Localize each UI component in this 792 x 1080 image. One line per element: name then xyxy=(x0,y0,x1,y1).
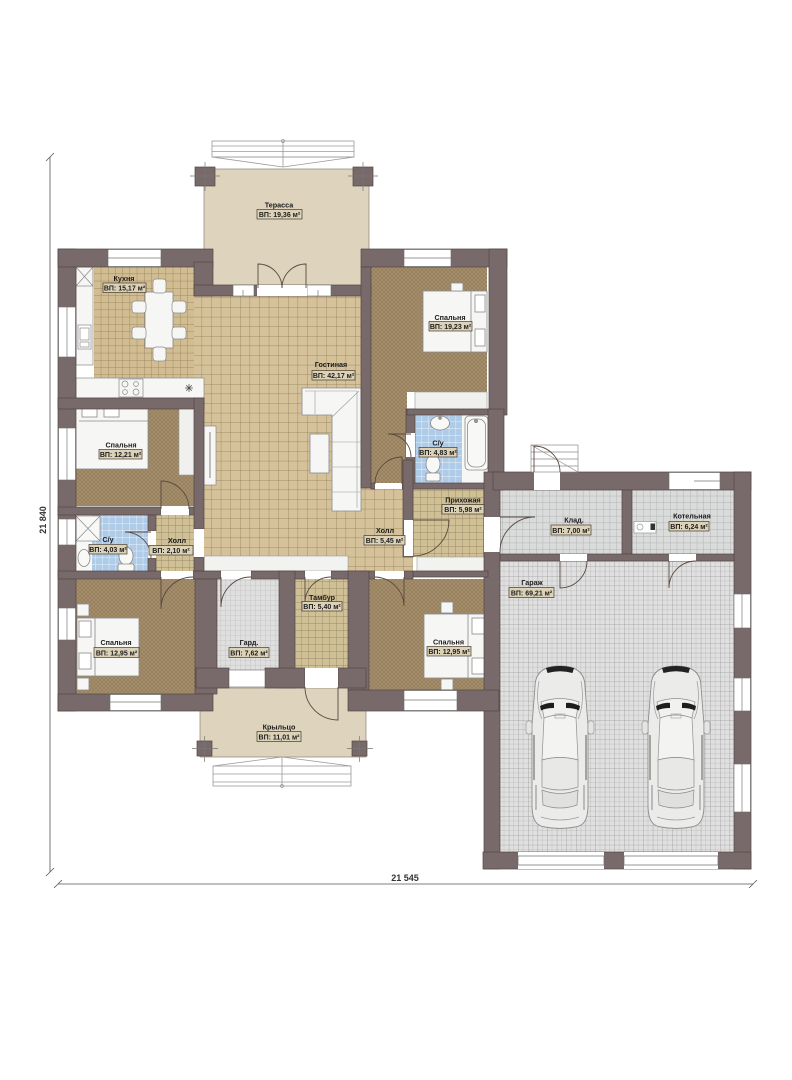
svg-text:ВП: 12,21 м²: ВП: 12,21 м² xyxy=(100,452,142,459)
svg-text:Кухня: Кухня xyxy=(113,274,134,283)
svg-text:Крыльцо: Крыльцо xyxy=(263,723,296,732)
svg-text:ВП: 15,17 м²: ВП: 15,17 м² xyxy=(104,286,146,293)
svg-text:ВП: 12,95 м²: ВП: 12,95 м² xyxy=(96,651,138,658)
svg-text:ВП: 7,00 м²: ВП: 7,00 м² xyxy=(552,528,590,535)
svg-text:ВП: 5,98 м²: ВП: 5,98 м² xyxy=(444,507,482,514)
svg-text:Спальня: Спальня xyxy=(433,638,464,647)
svg-text:ВП: 5,40 м²: ВП: 5,40 м² xyxy=(303,604,341,611)
svg-text:Клад.: Клад. xyxy=(564,516,584,525)
svg-text:ВП: 42,17 м²: ВП: 42,17 м² xyxy=(313,373,355,380)
svg-text:ВП: 4,83 м²: ВП: 4,83 м² xyxy=(419,450,457,457)
svg-text:ВП: 5,45 м²: ВП: 5,45 м² xyxy=(366,538,404,545)
svg-text:С/у: С/у xyxy=(102,535,113,544)
svg-text:21 840: 21 840 xyxy=(38,506,48,534)
svg-text:Холл: Холл xyxy=(168,536,186,545)
svg-text:ВП: 7,62 м²: ВП: 7,62 м² xyxy=(230,651,268,658)
svg-text:ВП: 11,01 м²: ВП: 11,01 м² xyxy=(259,735,301,742)
svg-text:Спальня: Спальня xyxy=(100,638,131,647)
svg-text:Холл: Холл xyxy=(376,526,394,535)
svg-text:Гостиная: Гостиная xyxy=(315,360,347,369)
svg-text:Тамбур: Тамбур xyxy=(309,593,336,602)
svg-text:ВП: 19,36 м²: ВП: 19,36 м² xyxy=(259,212,301,219)
svg-text:21 545: 21 545 xyxy=(391,873,419,883)
svg-text:Котельная: Котельная xyxy=(673,512,711,521)
svg-text:Терасса: Терасса xyxy=(265,201,294,210)
svg-text:Спальня: Спальня xyxy=(434,313,465,322)
svg-text:ВП: 69,21 м²: ВП: 69,21 м² xyxy=(511,591,553,598)
svg-text:ВП: 4,03 м²: ВП: 4,03 м² xyxy=(89,547,127,554)
svg-text:ВП: 19,23 м²: ВП: 19,23 м² xyxy=(430,324,472,331)
svg-text:Гараж: Гараж xyxy=(521,578,543,587)
svg-text:Спальня: Спальня xyxy=(105,441,136,450)
svg-text:ВП: 6,24 м²: ВП: 6,24 м² xyxy=(670,524,708,531)
svg-text:С/у: С/у xyxy=(432,439,443,448)
svg-text:Прихожая: Прихожая xyxy=(445,496,480,505)
svg-text:Гард.: Гард. xyxy=(240,638,259,647)
svg-text:ВП: 2,10 м²: ВП: 2,10 м² xyxy=(152,548,190,555)
svg-text:ВП: 12,95 м²: ВП: 12,95 м² xyxy=(428,649,470,656)
